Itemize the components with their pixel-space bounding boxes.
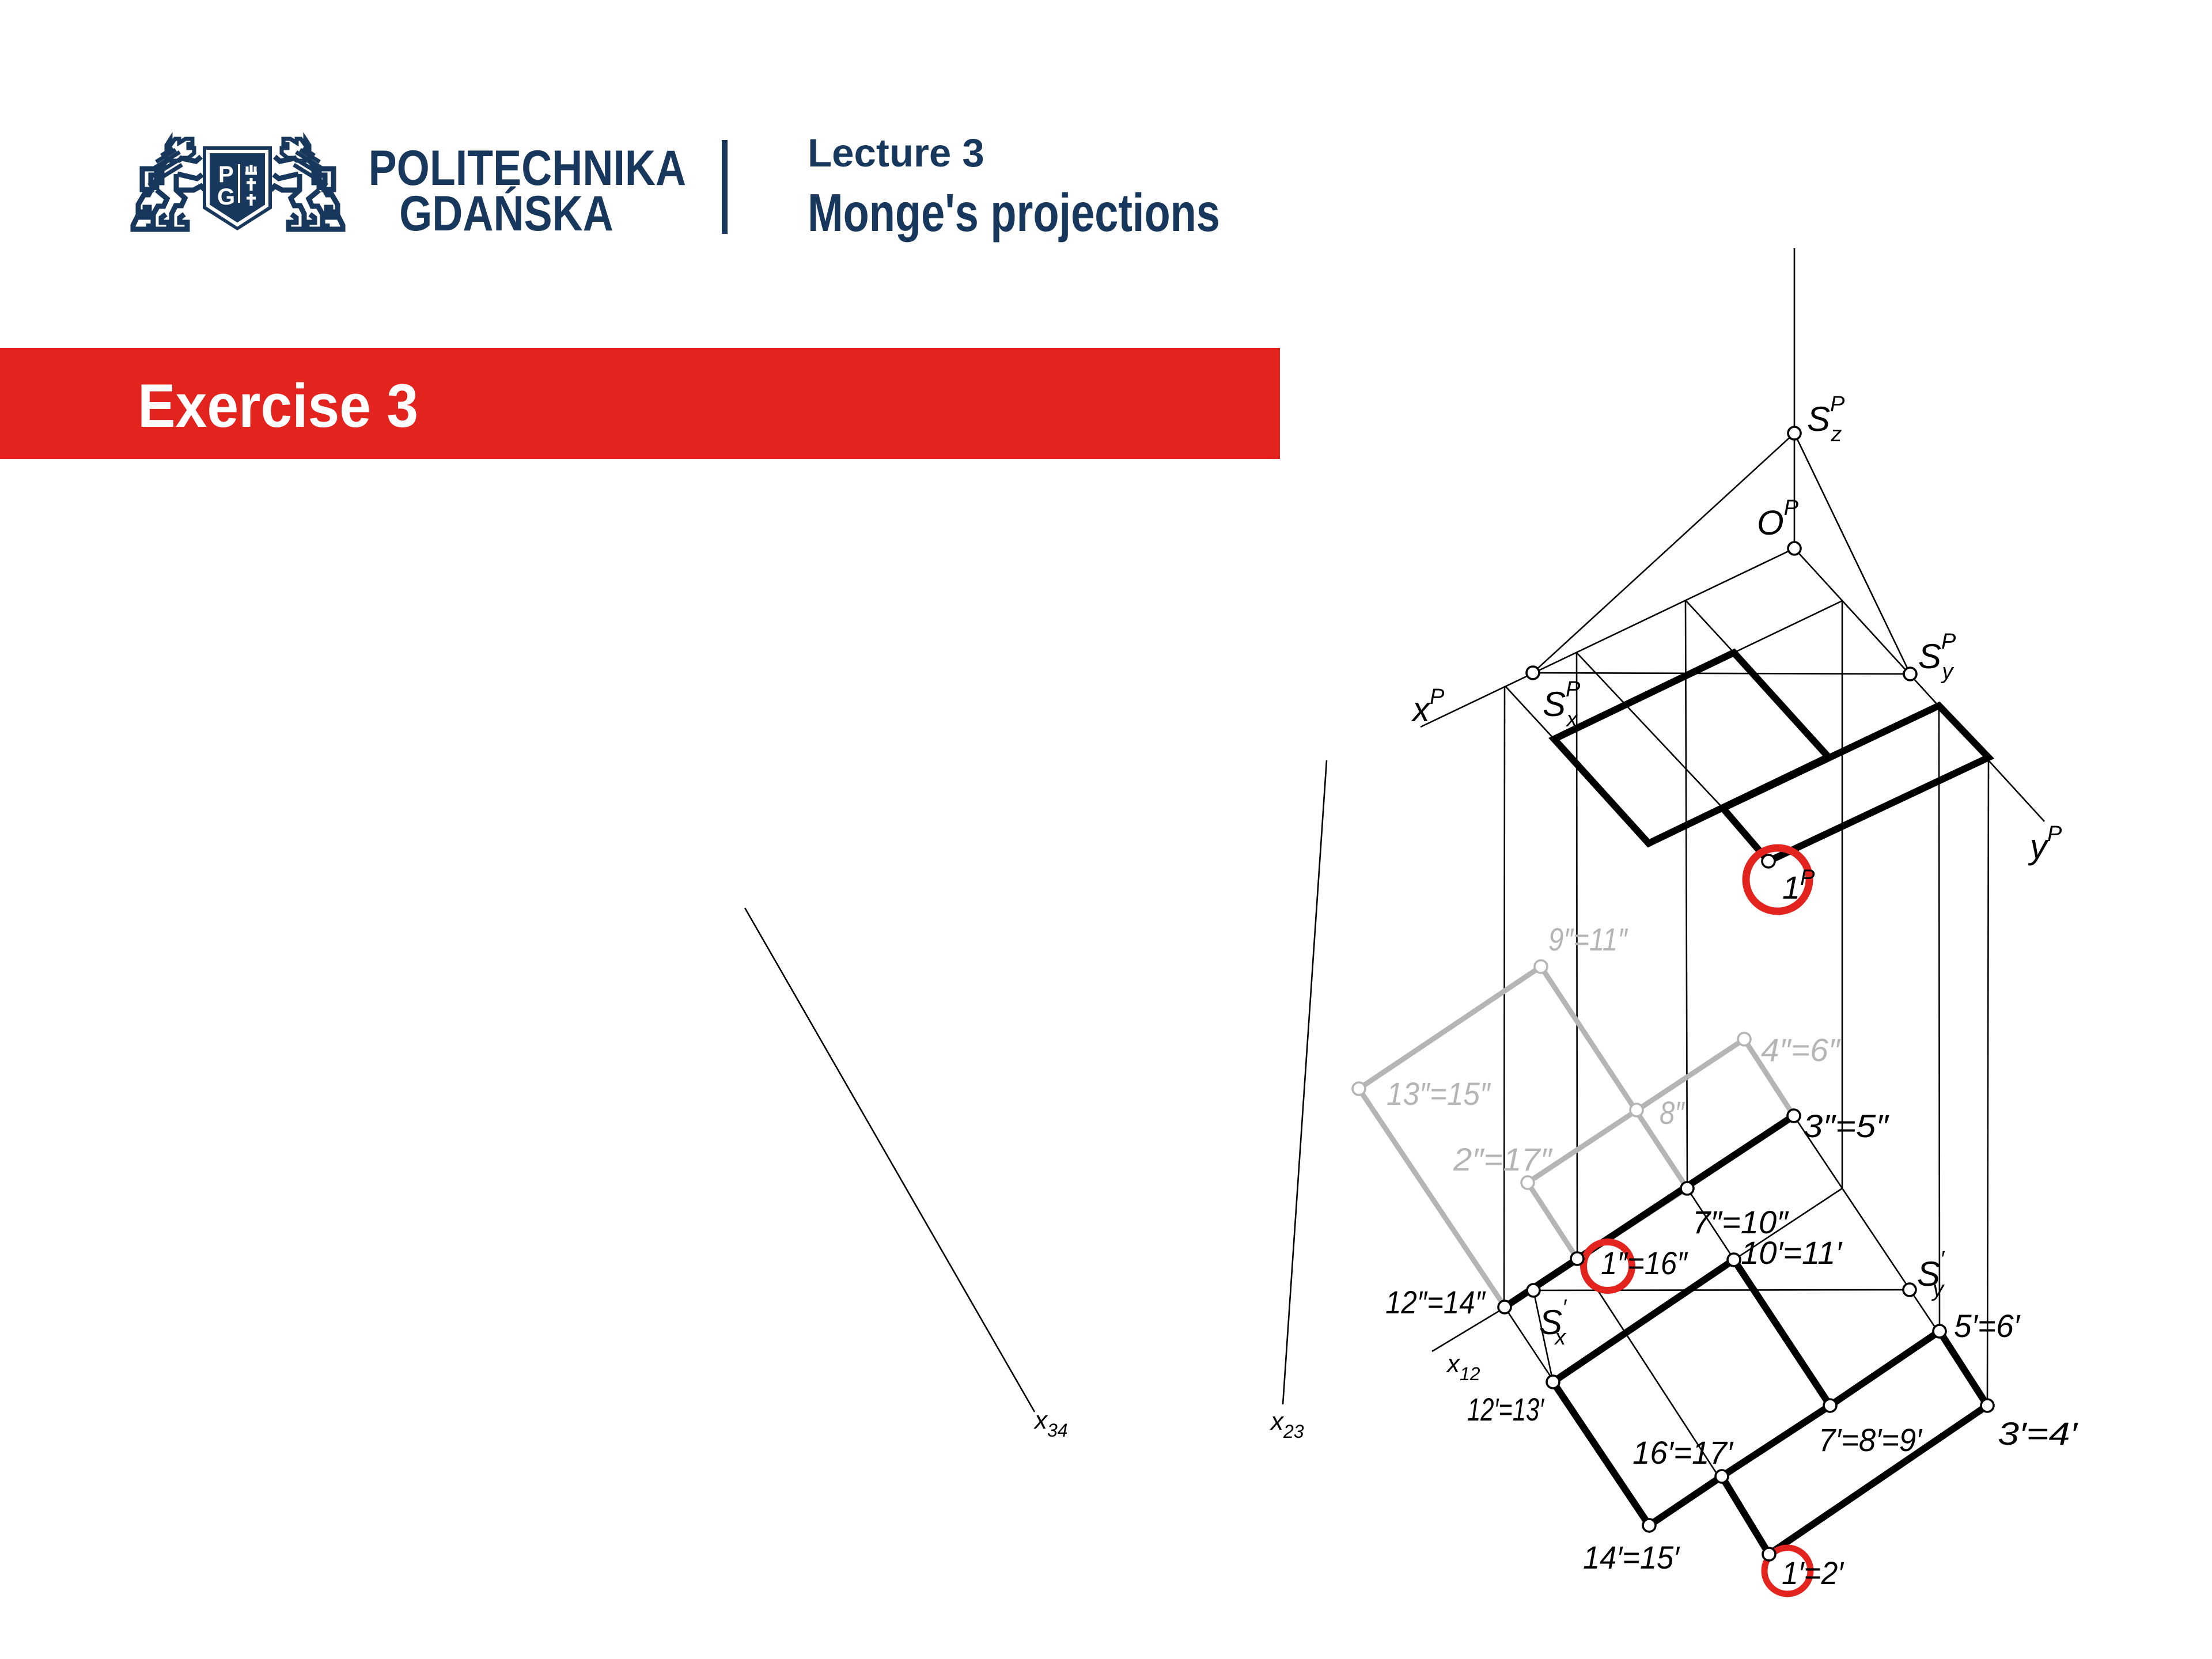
svg-text:14′=15′: 14′=15′ [1583, 1539, 1680, 1575]
svg-text:OP: OP [1757, 496, 1799, 542]
svg-text:S′y: S′y [1917, 1247, 1945, 1301]
svg-text:4″=6″: 4″=6″ [1761, 1032, 1841, 1068]
svg-text:16′=17′: 16′=17′ [1633, 1434, 1734, 1471]
svg-text:1′=2′: 1′=2′ [1782, 1555, 1844, 1591]
svg-text:10′=11′: 10′=11′ [1741, 1234, 1843, 1271]
svg-text:SPx: SPx [1543, 677, 1581, 732]
svg-text:yP: yP [2028, 822, 2062, 866]
svg-text:2″=17″: 2″=17″ [1453, 1141, 1553, 1177]
svg-text:1P: 1P [1782, 866, 1815, 906]
svg-text:SPy: SPy [1918, 630, 1956, 684]
svg-text:3″=5″: 3″=5″ [1803, 1108, 1889, 1144]
svg-text:S′x: S′x [1539, 1296, 1567, 1350]
svg-text:13″=15″: 13″=15″ [1387, 1075, 1491, 1112]
svg-text:x23: x23 [1270, 1407, 1304, 1442]
svg-text:12″=14″: 12″=14″ [1385, 1284, 1486, 1320]
svg-text:8″: 8″ [1660, 1094, 1685, 1131]
svg-text:SPz: SPz [1807, 392, 1845, 446]
svg-text:7′=8′=9′: 7′=8′=9′ [1819, 1422, 1923, 1458]
svg-text:1″=16″: 1″=16″ [1601, 1245, 1688, 1281]
svg-text:3′=4′: 3′=4′ [1998, 1415, 2079, 1452]
svg-text:x12: x12 [1446, 1350, 1480, 1384]
svg-text:x34: x34 [1033, 1406, 1068, 1441]
svg-text:12′=13′: 12′=13′ [1467, 1391, 1545, 1427]
svg-text:xP: xP [1411, 685, 1445, 729]
svg-text:5′=6′: 5′=6′ [1954, 1308, 2021, 1344]
svg-text:9″=11″: 9″=11″ [1548, 921, 1628, 957]
